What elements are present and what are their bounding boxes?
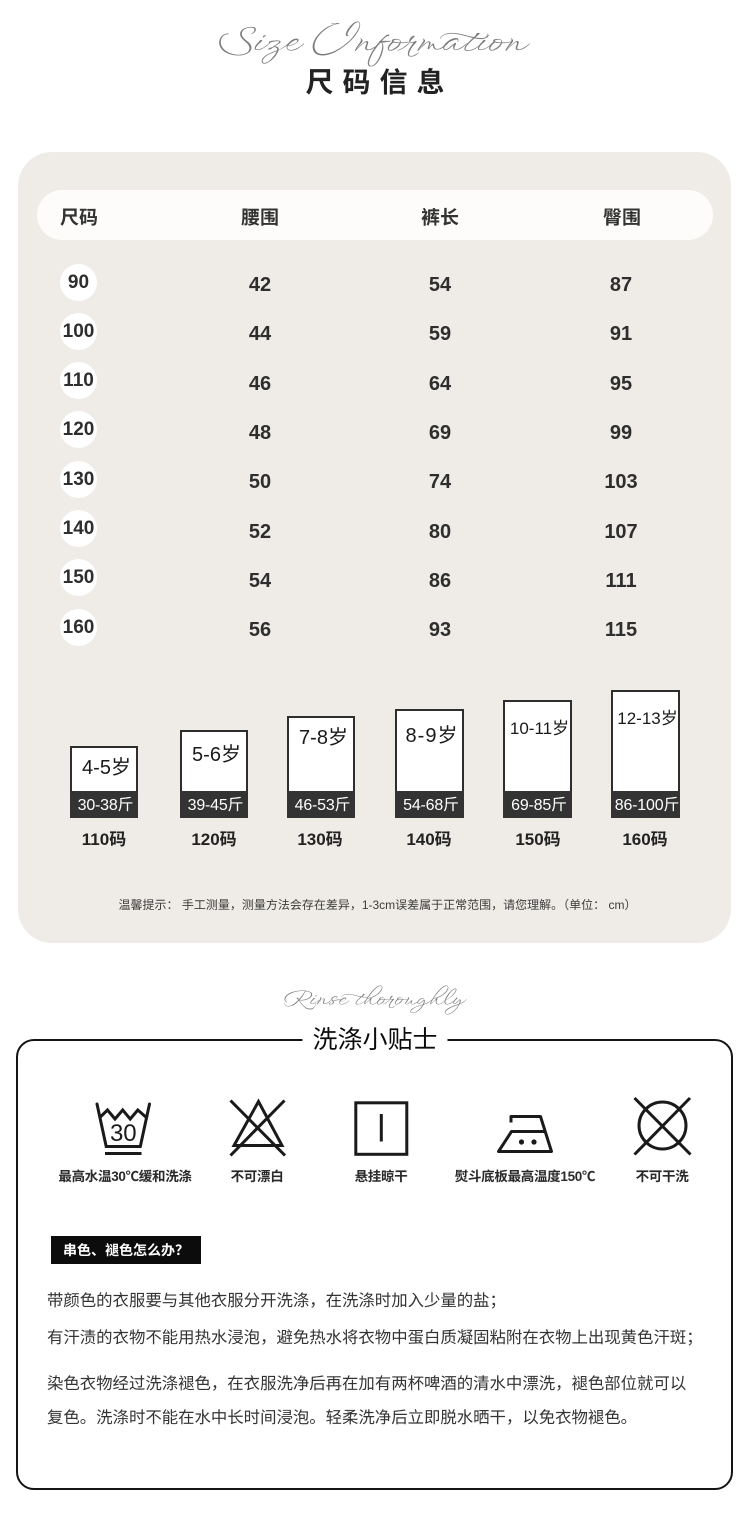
svg-text:30: 30 [110,1120,137,1147]
